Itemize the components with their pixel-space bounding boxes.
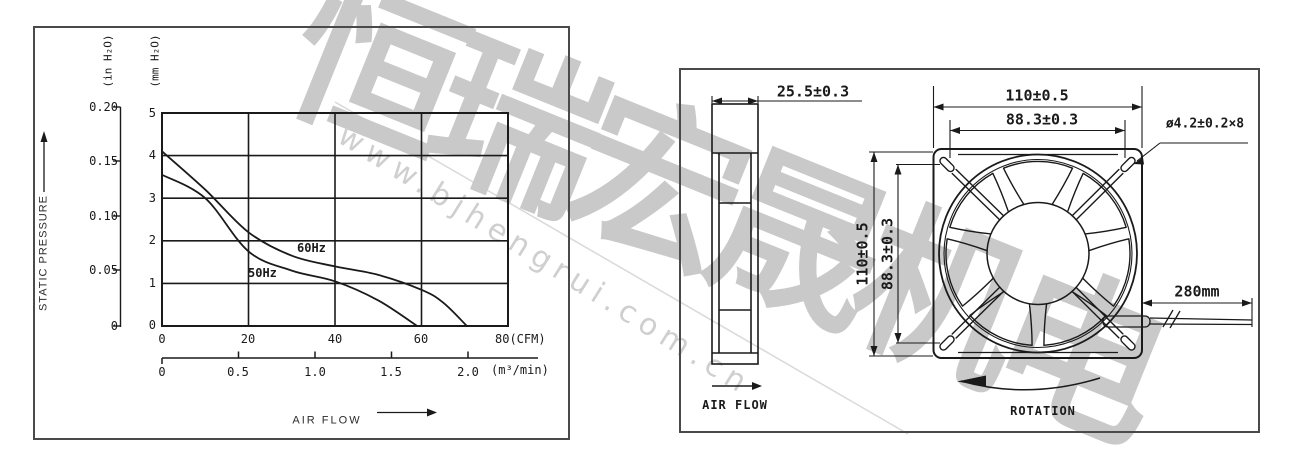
fan-datasheet-canvas: 恒瑞宏晟机电 www.bjhengrui.com.cn [0,0,1293,476]
mm-tick-5: 5 [136,107,156,119]
m3min-unit-label: (m³/min) [491,364,549,376]
m3-tick-05: 0.5 [216,366,260,378]
hole-callout-text: ø4.2±0.2×8 [1166,118,1244,131]
hole-pitch-v-dim-text: 88.3±0.3 [881,218,896,290]
depth-dim-text: 25.5±0.3 [777,85,849,100]
in-tick-0: 0 [75,320,118,332]
in-tick-010: 0.10 [75,210,118,222]
static-pressure-axis-title: STATIC PRESSURE [39,195,50,311]
mm-tick-4: 4 [136,149,156,161]
mm-tick-2: 2 [136,234,156,246]
mm-tick-1: 1 [136,277,156,289]
unit-mm-h2o-label: (mm H₂O) [150,35,161,88]
curve-label-50hz: 50Hz [248,267,277,279]
height-dim-text: 110±0.5 [856,222,871,285]
unit-in-h2o-label: (in H₂O) [103,35,114,88]
in-tick-005: 0.05 [75,264,118,276]
width-dim-text: 110±0.5 [1005,89,1068,104]
m3-tick-20: 2.0 [446,366,490,378]
m3-tick-15: 1.5 [369,366,413,378]
mm-tick-0: 0 [136,319,156,331]
m3-tick-10: 1.0 [293,366,337,378]
in-tick-020: 0.20 [75,101,118,113]
cfm-tick-0: 0 [140,333,184,345]
curve-label-60hz: 60Hz [297,242,326,254]
in-tick-015: 0.15 [75,155,118,167]
cfm-tick-80-unit: 80(CFM) [495,333,546,345]
cfm-tick-60: 60 [399,333,443,345]
m3-tick-0: 0 [140,366,184,378]
lead-wire-dim-text: 280mm [1174,285,1219,300]
rotation-label: ROTATION [1010,405,1076,417]
cfm-tick-40: 40 [313,333,357,345]
air-flow-label-drawing: AIR FLOW [702,399,768,411]
air-flow-axis-title: AIR FLOW [292,416,361,427]
hole-pitch-h-dim-text: 88.3±0.3 [1006,113,1078,128]
cfm-tick-20: 20 [226,333,270,345]
mm-tick-3: 3 [136,192,156,204]
